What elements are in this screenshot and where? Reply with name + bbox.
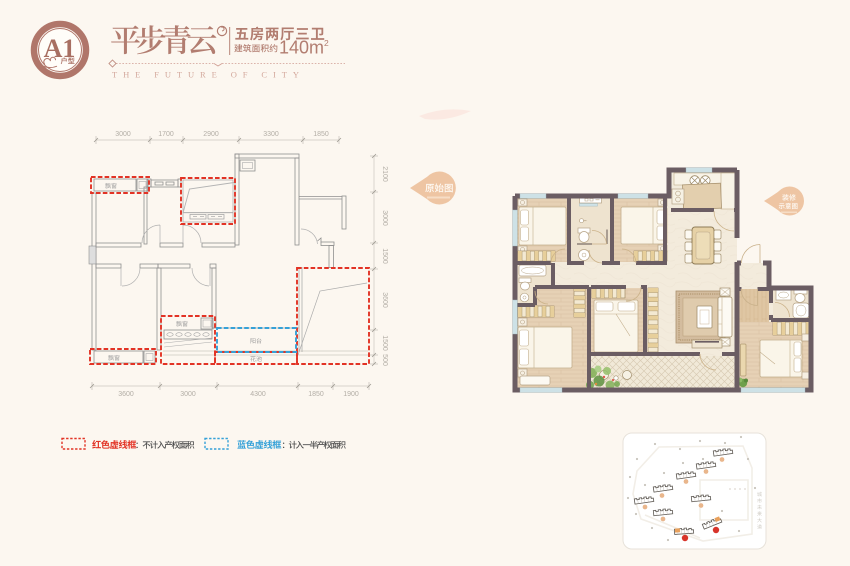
svg-text:1700: 1700 xyxy=(158,131,174,138)
svg-text:500: 500 xyxy=(381,354,388,366)
svg-text:3600: 3600 xyxy=(381,292,388,308)
svg-text:1850: 1850 xyxy=(308,391,324,398)
svg-text:3000: 3000 xyxy=(381,210,388,226)
svg-text:THE FUTURE OF CITY: THE FUTURE OF CITY xyxy=(112,70,305,80)
svg-text:140m: 140m xyxy=(279,38,324,58)
svg-text:4300: 4300 xyxy=(250,391,266,398)
svg-text:1850: 1850 xyxy=(313,131,329,138)
svg-text:1500: 1500 xyxy=(381,248,388,264)
svg-text:3000: 3000 xyxy=(115,131,131,138)
svg-text:1500: 1500 xyxy=(381,335,388,351)
svg-text:2900: 2900 xyxy=(203,131,219,138)
svg-text:3000: 3000 xyxy=(180,391,196,398)
svg-text:3300: 3300 xyxy=(263,131,279,138)
svg-text:2100: 2100 xyxy=(381,166,388,182)
svg-text:3600: 3600 xyxy=(118,391,134,398)
svg-text:1900: 1900 xyxy=(343,391,359,398)
svg-text:2: 2 xyxy=(324,38,329,48)
